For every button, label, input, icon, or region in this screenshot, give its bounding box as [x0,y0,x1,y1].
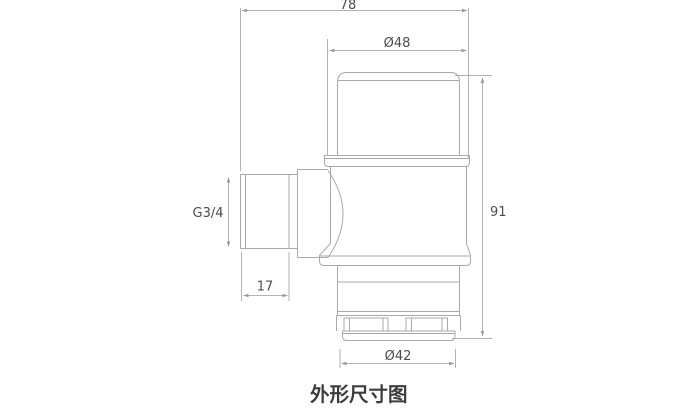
cap-outline [338,73,460,156]
valve-dimension-drawing: 78 Ø48 91 G3/4 17 Ø42 外形尺寸图 [0,0,700,412]
dim-label-cap-diameter: Ø48 [384,36,411,51]
dim-label-overall-width: 78 [340,0,357,13]
drain-slot-left-window [344,318,388,331]
valve-outline-group [241,73,471,341]
dim-label-overall-height: 91 [490,205,507,220]
body-skirt-outline [320,244,471,266]
dim-label-thread-length: 17 [257,280,274,295]
drawing-caption: 外形尺寸图 [310,383,408,406]
dim-label-bottom-diameter: Ø42 [385,349,412,364]
bottom-cap-outline [343,331,456,341]
flange-outline [325,156,470,167]
drain-slot-right-window [406,318,448,331]
technical-drawing-page: 78 Ø48 91 G3/4 17 Ø42 外形尺寸图 [0,0,700,412]
dimension-lines-group [229,8,493,368]
drain-slot-left-inner-lines [350,318,384,331]
dim-label-inlet-thread: G3/4 [193,206,224,221]
drain-slot-right-inner-lines [412,318,443,331]
